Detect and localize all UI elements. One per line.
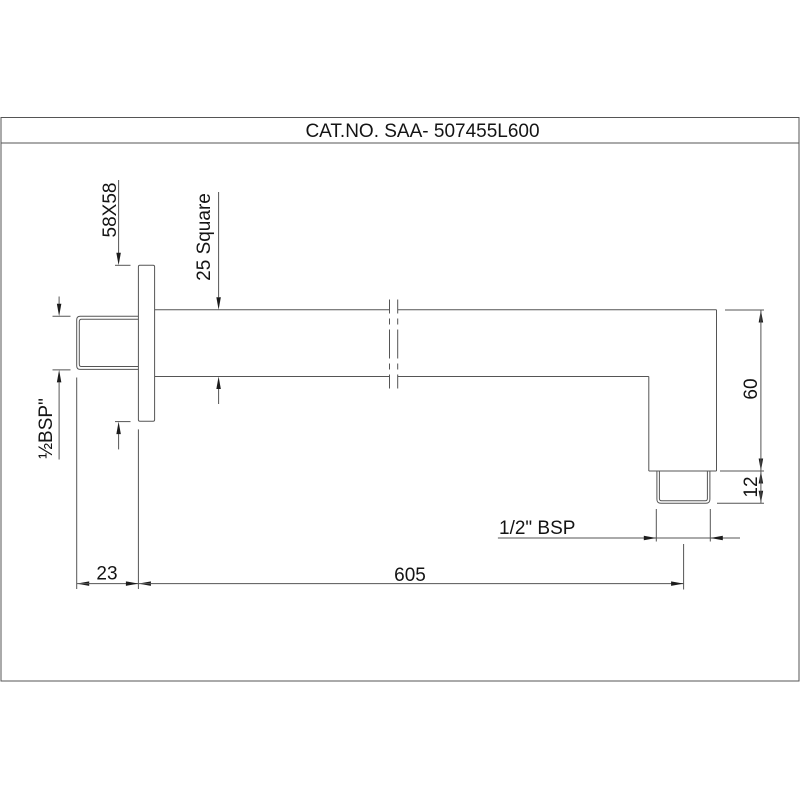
svg-text:605: 605 — [394, 565, 426, 586]
svg-text:60: 60 — [741, 378, 762, 399]
svg-text:½BSP": ½BSP" — [36, 398, 57, 459]
svg-text:12: 12 — [741, 476, 762, 497]
svg-text:25 Square: 25 Square — [194, 193, 215, 281]
svg-text:1/2" BSP: 1/2" BSP — [499, 518, 575, 539]
svg-text:58X58: 58X58 — [100, 183, 121, 238]
svg-text:CAT.NO. SAA- 507455L600: CAT.NO. SAA- 507455L600 — [305, 121, 539, 142]
svg-text:23: 23 — [96, 564, 117, 585]
